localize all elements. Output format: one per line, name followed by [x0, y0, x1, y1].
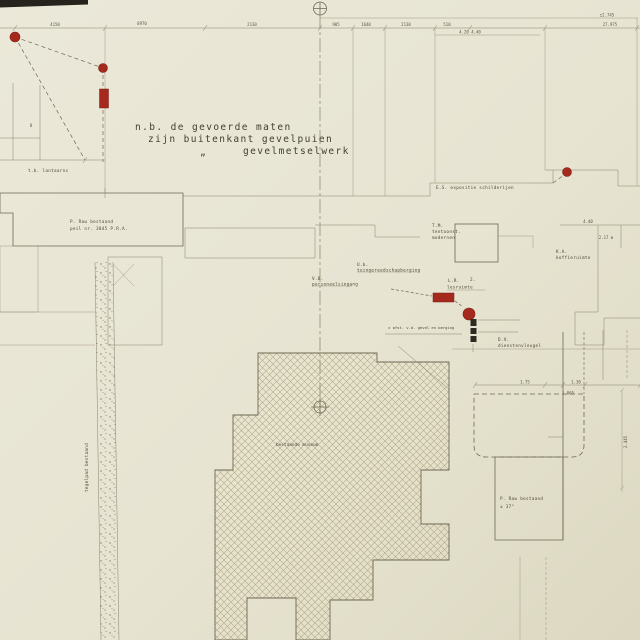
dim-label: 1.065	[562, 391, 575, 396]
label-band-2: peil nr. 3845 P.R.A.	[70, 226, 128, 232]
red-bar-marker	[100, 89, 109, 108]
label-tm-3: modernen	[432, 235, 455, 241]
label-museum: bestaande museum	[276, 442, 319, 448]
dim-label: 2.445	[623, 435, 628, 448]
red-survey-dot	[463, 308, 475, 320]
label-es: E.S. expositie schilderijen	[436, 185, 514, 191]
dim-label: 8970	[137, 21, 147, 26]
red-survey-dot	[10, 32, 20, 42]
dim-label: 4.20 4.40	[459, 30, 481, 35]
label-tm-1: T.M.	[432, 223, 444, 229]
dim-label: 27.975	[603, 22, 618, 27]
label-tegelpad: tegelpad bestaand	[84, 443, 90, 492]
dim-label: 2130	[247, 22, 257, 27]
label-tm-2: tentoonst.	[432, 229, 461, 235]
site-plan-drawing: n.b. de gevoerde maten zijn buitenkant g…	[0, 0, 640, 640]
dim-label: 4.40	[583, 219, 593, 224]
dim-label: 905	[332, 22, 340, 27]
dim-label: ±2.745	[600, 13, 615, 18]
dim-label: 510	[443, 22, 451, 27]
red-survey-dot	[99, 64, 108, 73]
label-vb-2: personeelsingang	[312, 282, 358, 288]
dim-label: 2.17 m	[599, 235, 614, 240]
label-dv-1: D.V.	[498, 337, 510, 343]
label-dv-2: dienstenvleugel	[498, 343, 541, 349]
note-line-3: gevelmetselwerk	[243, 146, 350, 157]
label-ub-1: U.b.	[357, 262, 369, 268]
dim-label: 4150	[50, 22, 60, 27]
label-ka-2: koffieruimte	[556, 255, 591, 261]
label-vb-1: V.B.	[312, 276, 324, 282]
red-bar-marker	[433, 293, 454, 302]
label-ka-1: K.A.	[556, 249, 568, 255]
note-line-2: zijn buitenkant gevelpuien	[148, 134, 333, 145]
label-topleft: t.b. lantaarns	[28, 168, 69, 174]
label-ub-2: tuingereedschapberging	[357, 268, 421, 274]
black-segmented-bar	[471, 319, 477, 342]
label-br-1: P. Raw bestaand	[500, 496, 543, 502]
architectural-plan-sheet: n.b. de gevoerde maten zijn buitenkant g…	[0, 0, 640, 640]
label-lr-num: 2.	[470, 277, 476, 283]
label-lr-2: lesruimte	[447, 285, 473, 291]
dim-label: 1640	[361, 22, 371, 27]
label-lr-1: L.R.	[448, 278, 460, 284]
dim-label: 1.30	[571, 380, 581, 385]
label-erfnote: ± afst. v.d. gevel en berging	[388, 325, 454, 330]
label-band-1: P. Raw bestaand	[70, 219, 113, 225]
note-ditto-mark: „	[200, 147, 207, 158]
note-line-1: n.b. de gevoerde maten	[135, 122, 292, 133]
dim-label: 1.75	[520, 380, 530, 385]
dim-label: 2130	[401, 22, 411, 27]
red-survey-dot	[563, 168, 572, 177]
label-br-2: ± 37°	[500, 504, 514, 510]
survey-point-icon-top	[314, 2, 327, 15]
